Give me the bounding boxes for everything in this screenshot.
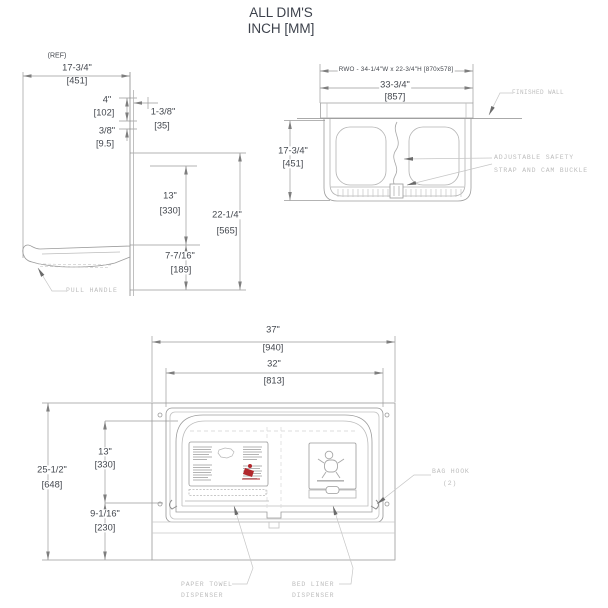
pull-handle-label: PULL HANDLE — [66, 288, 118, 295]
dim-front-width-mm: [940] — [262, 343, 285, 352]
mounting-hole — [158, 413, 162, 417]
finished-wall-leader — [489, 93, 512, 115]
dim-lip-in: 1-3/8" — [150, 107, 177, 116]
sheet-title-line2: INCH [MM] — [248, 21, 315, 37]
dim-gap-in: 3/8" — [98, 126, 116, 135]
bed-liner-label-line2: DISPENSER — [292, 593, 334, 600]
dim-lower-height-in: 9-1/16" — [89, 509, 121, 518]
bed-liner-leader — [333, 506, 353, 584]
baby-symbol-label — [309, 443, 356, 489]
dim-overall-height-in: 22-1/4" — [211, 210, 243, 219]
dim-top-offset-in: 4" — [102, 95, 112, 104]
dim-front-height-in: 25-1/2" — [36, 465, 68, 474]
label-caption-bar — [317, 480, 344, 482]
dim-bed-height-mm: [330] — [159, 206, 182, 215]
sheet-title-line1: ALL DIM'S — [249, 5, 313, 21]
warning-instructions-label — [189, 442, 268, 486]
dim-plan-depth-in: 17-3/4" — [277, 146, 309, 155]
bag-hook-label-line2: (2) — [443, 481, 457, 488]
thumb-tab — [326, 487, 339, 494]
bag-hook-label-line1: BAG HOOK — [432, 469, 470, 476]
strap-leader — [404, 158, 492, 159]
open-tray-profile — [23, 245, 130, 267]
recessed-housing-top — [321, 103, 474, 118]
tray-pad-left — [336, 127, 386, 185]
pull-handle-leader — [38, 268, 66, 291]
dim-rough-wall-opening: RWO - 34-1/4"W x 22-3/4"H [870x578] — [338, 67, 455, 73]
mounting-hole — [385, 413, 389, 417]
dim-lower-height-mm: [230] — [94, 523, 117, 532]
dim-plan-width-mm: [857] — [384, 92, 407, 101]
dim-lower-height-mm: [189] — [170, 265, 193, 274]
cam-buckle — [390, 184, 403, 198]
side-view-dimension-lines — [23, 72, 246, 290]
paper-towel-leader — [232, 506, 253, 584]
dim-gap-mm: [9.5] — [95, 139, 115, 148]
dim-flange-width-mm: [813] — [263, 376, 286, 385]
finished-wall-label: FINISHED WALL — [512, 90, 564, 96]
strap-label-line1: ADJUSTABLE SAFETY — [494, 155, 574, 162]
paper-towel-label-line2: DISPENSER — [181, 593, 223, 600]
buckle-leader — [407, 164, 492, 185]
tray-surface-line — [42, 252, 120, 254]
dim-overall-height-mm: [565] — [216, 226, 239, 235]
dim-plan-width-in: 33-3/4" — [379, 80, 411, 89]
dim-front-height-mm: [648] — [41, 480, 64, 489]
safety-strap — [393, 122, 398, 188]
mounting-hole — [158, 502, 162, 506]
dim-lip-mm: [35] — [153, 121, 171, 130]
side-view-drawing — [23, 72, 246, 296]
paper-towel-slot — [189, 490, 266, 496]
dim-plan-depth-mm: [451] — [282, 159, 305, 168]
dim-ref-note: (REF) — [47, 53, 68, 60]
strap-label-line2: STRAP AND CAM BUCKLE — [494, 168, 588, 175]
dim-flange-width-in: 32" — [266, 359, 282, 368]
dim-upper-height-in: 13" — [97, 447, 113, 456]
dim-side-depth-mm: [451] — [66, 76, 89, 85]
dim-bed-height-in: 13" — [162, 191, 178, 200]
dim-front-width-in: 37" — [265, 325, 281, 334]
mounting-hole — [385, 502, 389, 506]
latch — [269, 522, 279, 528]
bag-hook-leader — [377, 475, 431, 504]
dim-upper-height-mm: [330] — [94, 460, 117, 469]
tray-pad-right — [409, 127, 459, 185]
dim-side-depth-in: 17-3/4" — [61, 63, 93, 72]
bed-liner-label-line1: BED LINER — [292, 582, 334, 589]
drawing-sheet: ALL DIM'S INCH [MM] (REF) 17-3/4" [451] … — [0, 0, 608, 608]
dim-lower-height-in: 7-7/16" — [164, 251, 196, 260]
paper-towel-label-line1: PAPER TOWEL — [181, 582, 233, 589]
dim-top-offset-mm: [102] — [93, 108, 116, 117]
